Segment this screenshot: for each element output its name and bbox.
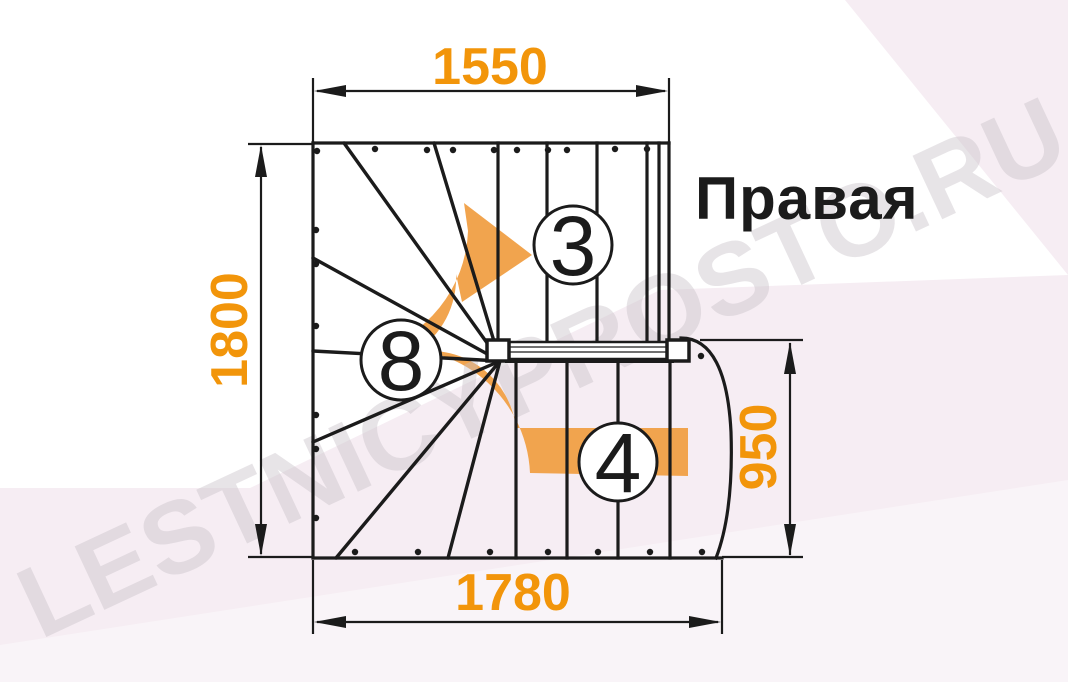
newel-post-left — [487, 340, 509, 361]
winder-count: 8 — [378, 314, 425, 408]
dimension-left-value: 1800 — [201, 272, 259, 388]
upper-flight-count: 3 — [550, 199, 597, 293]
stair-plan-diagram: LESTNICYPROSTO.RU — [0, 0, 1068, 682]
dimension-bottom-value: 1780 — [455, 564, 571, 622]
dimension-right-value: 950 — [730, 404, 788, 491]
lower-flight-count: 4 — [595, 416, 642, 510]
landing-step-board — [505, 342, 670, 359]
stair-plan-svg: LESTNICYPROSTO.RU — [0, 0, 1068, 682]
newel-post-right — [667, 340, 689, 361]
dimension-top-value: 1550 — [432, 38, 548, 96]
orientation-label: Правая — [695, 165, 919, 232]
